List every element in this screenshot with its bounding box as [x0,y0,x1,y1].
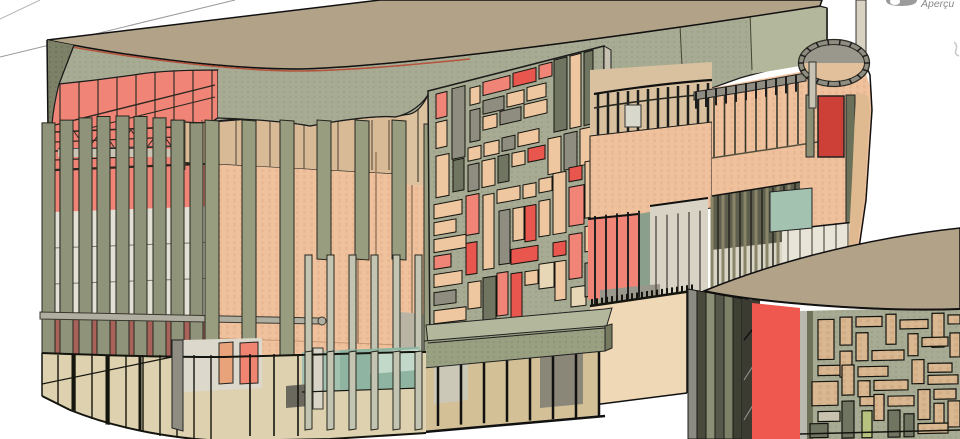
svg-text:Aperçu: Aperçu [920,0,954,10]
